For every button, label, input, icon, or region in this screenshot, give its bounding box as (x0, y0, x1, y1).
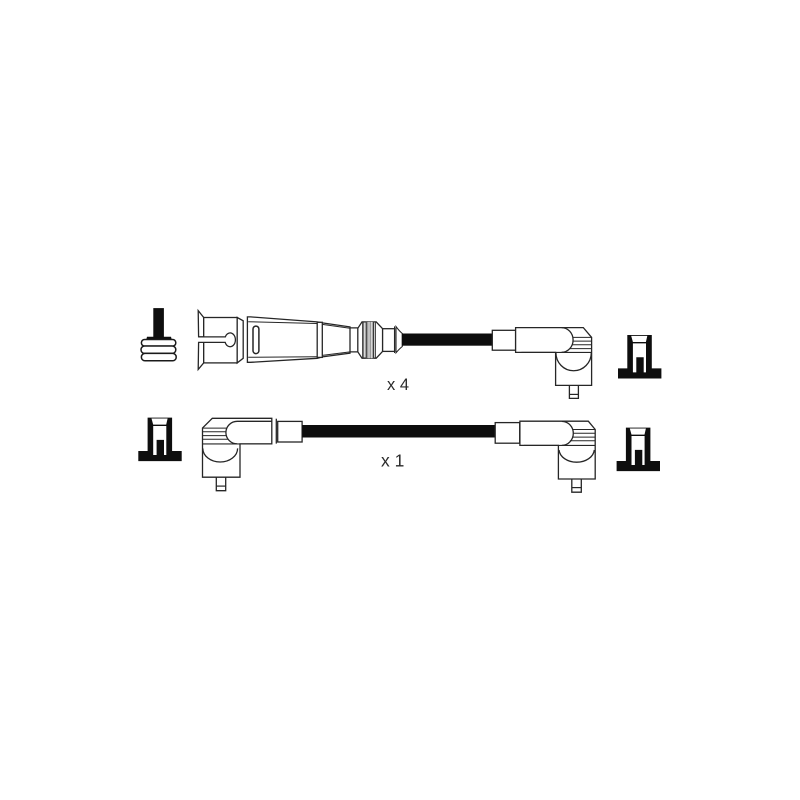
svg-text:x 1: x 1 (381, 451, 404, 471)
svg-text:x 4: x 4 (387, 376, 409, 394)
